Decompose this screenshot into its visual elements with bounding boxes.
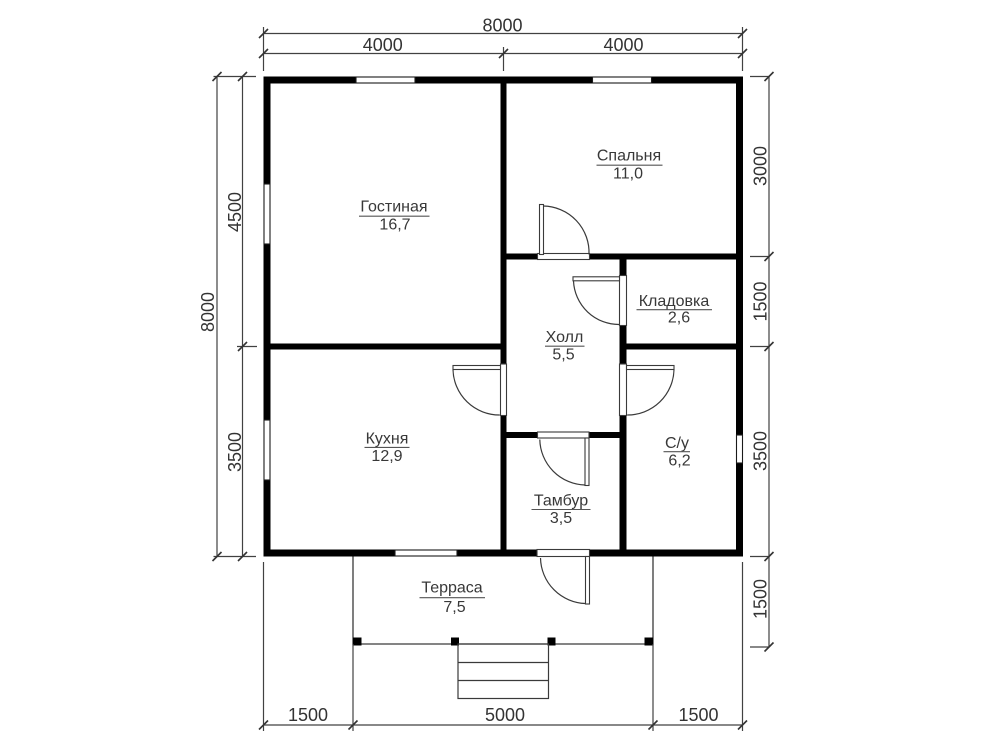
svg-text:3500: 3500	[225, 432, 245, 472]
svg-text:8000: 8000	[482, 16, 522, 36]
svg-text:Кухня: Кухня	[366, 430, 409, 447]
svg-text:Терраса: Терраса	[421, 580, 482, 597]
svg-text:3500: 3500	[751, 431, 771, 471]
svg-text:Кладовка: Кладовка	[639, 293, 710, 310]
svg-text:11,0: 11,0	[613, 166, 643, 183]
svg-text:5000: 5000	[485, 705, 525, 725]
svg-text:Спальня: Спальня	[597, 148, 661, 165]
svg-text:4000: 4000	[603, 35, 643, 55]
svg-text:Тамбур: Тамбур	[534, 492, 588, 509]
svg-text:3,5: 3,5	[550, 510, 572, 527]
svg-text:С/у: С/у	[665, 435, 689, 452]
svg-text:Гостиная: Гостиная	[360, 199, 427, 216]
svg-text:4500: 4500	[225, 192, 245, 232]
svg-text:1500: 1500	[751, 579, 771, 619]
svg-text:1500: 1500	[751, 281, 771, 321]
svg-text:16,7: 16,7	[379, 217, 410, 234]
svg-text:Холл: Холл	[546, 329, 584, 346]
svg-text:2,6: 2,6	[668, 310, 690, 327]
svg-text:12,9: 12,9	[371, 448, 402, 465]
svg-text:8000: 8000	[198, 292, 218, 332]
svg-text:1500: 1500	[678, 705, 718, 725]
svg-text:1500: 1500	[288, 705, 328, 725]
svg-text:6,2: 6,2	[668, 453, 690, 470]
svg-text:5,5: 5,5	[552, 347, 574, 364]
svg-text:7,5: 7,5	[443, 599, 465, 616]
svg-text:3000: 3000	[751, 146, 771, 186]
svg-text:4000: 4000	[363, 35, 403, 55]
